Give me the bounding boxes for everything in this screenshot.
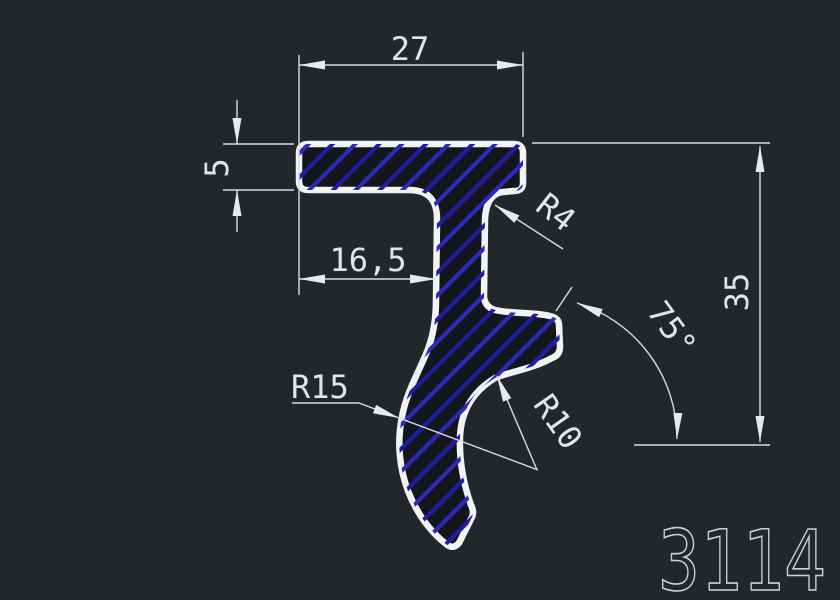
extension-line <box>556 287 572 311</box>
dim-arrowhead <box>497 61 523 70</box>
dim-inner-radius-r10: R10 <box>493 374 590 470</box>
dim-arrowhead <box>756 146 765 172</box>
cad-drawing-canvas: 27 5 16,5 R4 35 75° <box>0 0 840 600</box>
section-hatch <box>280 130 580 570</box>
dim-label-r10: R10 <box>526 387 590 456</box>
dim-label-35: 35 <box>718 273 756 312</box>
dim-label-75deg: 75° <box>640 294 705 363</box>
dim-fillet-r4: R4 <box>493 185 583 249</box>
dim-label-27: 27 <box>391 30 430 68</box>
dim-arrowhead <box>673 413 683 439</box>
dim-label-5: 5 <box>198 158 236 177</box>
dim-arrowhead <box>575 299 602 317</box>
dim-arrowhead <box>410 275 436 284</box>
dim-label-r4: R4 <box>529 185 583 239</box>
dim-arrowhead <box>299 61 325 70</box>
dim-label-r15: R15 <box>291 368 349 406</box>
profile-section <box>280 130 580 570</box>
dim-label-16-5: 16,5 <box>329 241 406 279</box>
dim-arrowhead <box>756 416 765 442</box>
dim-arrowhead <box>233 190 242 216</box>
part-number: 3114 <box>658 512 826 600</box>
dim-web-offset: 16,5 <box>299 241 436 284</box>
dim-flange-thickness: 5 <box>198 100 294 232</box>
dim-arrowhead <box>493 201 520 223</box>
dim-arrowhead <box>299 275 325 284</box>
dim-arrowhead <box>233 118 242 144</box>
dim-arrowhead <box>373 405 401 422</box>
profile-drawing: 27 5 16,5 R4 35 75° <box>0 0 840 600</box>
